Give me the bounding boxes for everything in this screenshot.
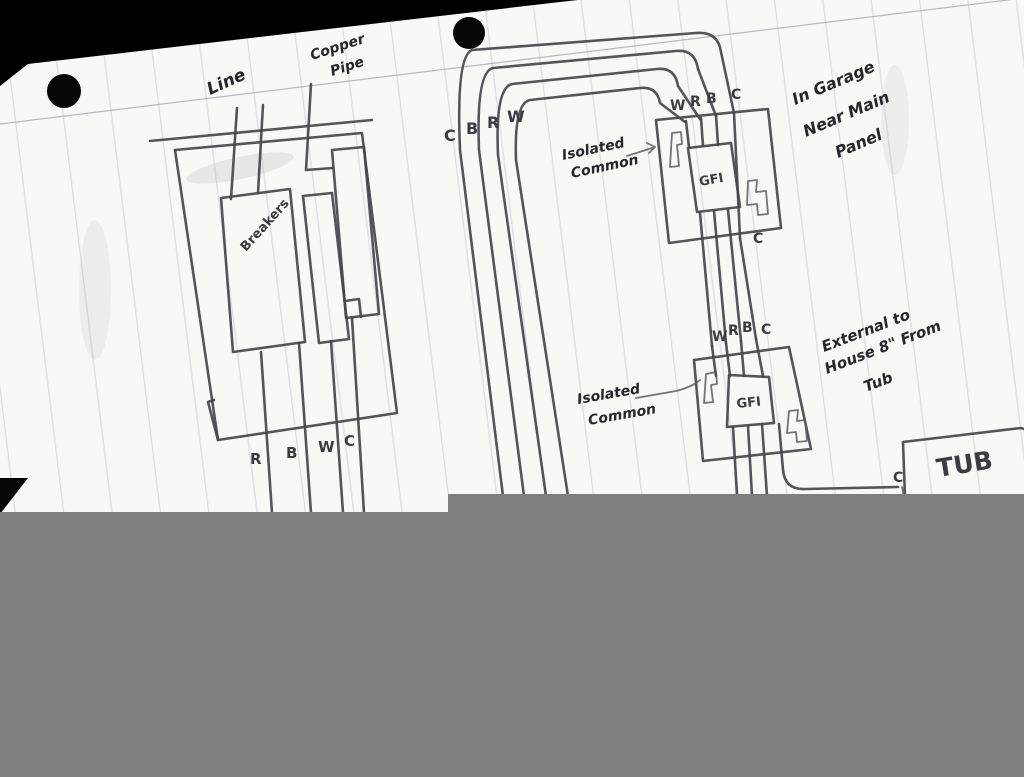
- external-wire-label-c: C: [761, 322, 771, 338]
- panel-wire-label-c: C: [344, 432, 355, 450]
- smudge: [881, 65, 909, 175]
- hole-punch-left: [47, 74, 81, 108]
- garage-wire-label-w: W: [670, 98, 685, 114]
- external-wire-label-b: B: [742, 320, 753, 336]
- hole-punch-right: [453, 17, 485, 49]
- panel-wire-label-b: B: [286, 444, 297, 462]
- wiring-sketch-svg: Line Copper Pipe Breakers R B W C C B R …: [0, 0, 1024, 777]
- riser-label-c: C: [444, 126, 456, 145]
- external-wire-label-w: W: [712, 329, 727, 345]
- panel-wire-label-w: W: [318, 438, 335, 456]
- garage-wire-label-c: C: [731, 87, 741, 103]
- tub-common-label: C: [893, 470, 903, 486]
- censor-block-right: [448, 494, 1024, 777]
- riser-label-r: R: [487, 113, 499, 132]
- garage-wire-label-b: B: [706, 91, 717, 107]
- censor-block-left: [0, 512, 451, 777]
- external-wire-label-r: R: [728, 323, 739, 339]
- riser-label-w: W: [507, 107, 525, 126]
- gfi-external-label: GFI: [736, 395, 762, 412]
- riser-label-b: B: [466, 119, 478, 138]
- smudge: [79, 220, 111, 360]
- panel-wire-label-r: R: [250, 450, 262, 468]
- overlays: [0, 478, 1024, 777]
- garage-common-label: C: [753, 231, 763, 247]
- garage-wire-label-r: R: [690, 94, 701, 110]
- scanned-wiring-sketch: Line Copper Pipe Breakers R B W C C B R …: [0, 0, 1024, 777]
